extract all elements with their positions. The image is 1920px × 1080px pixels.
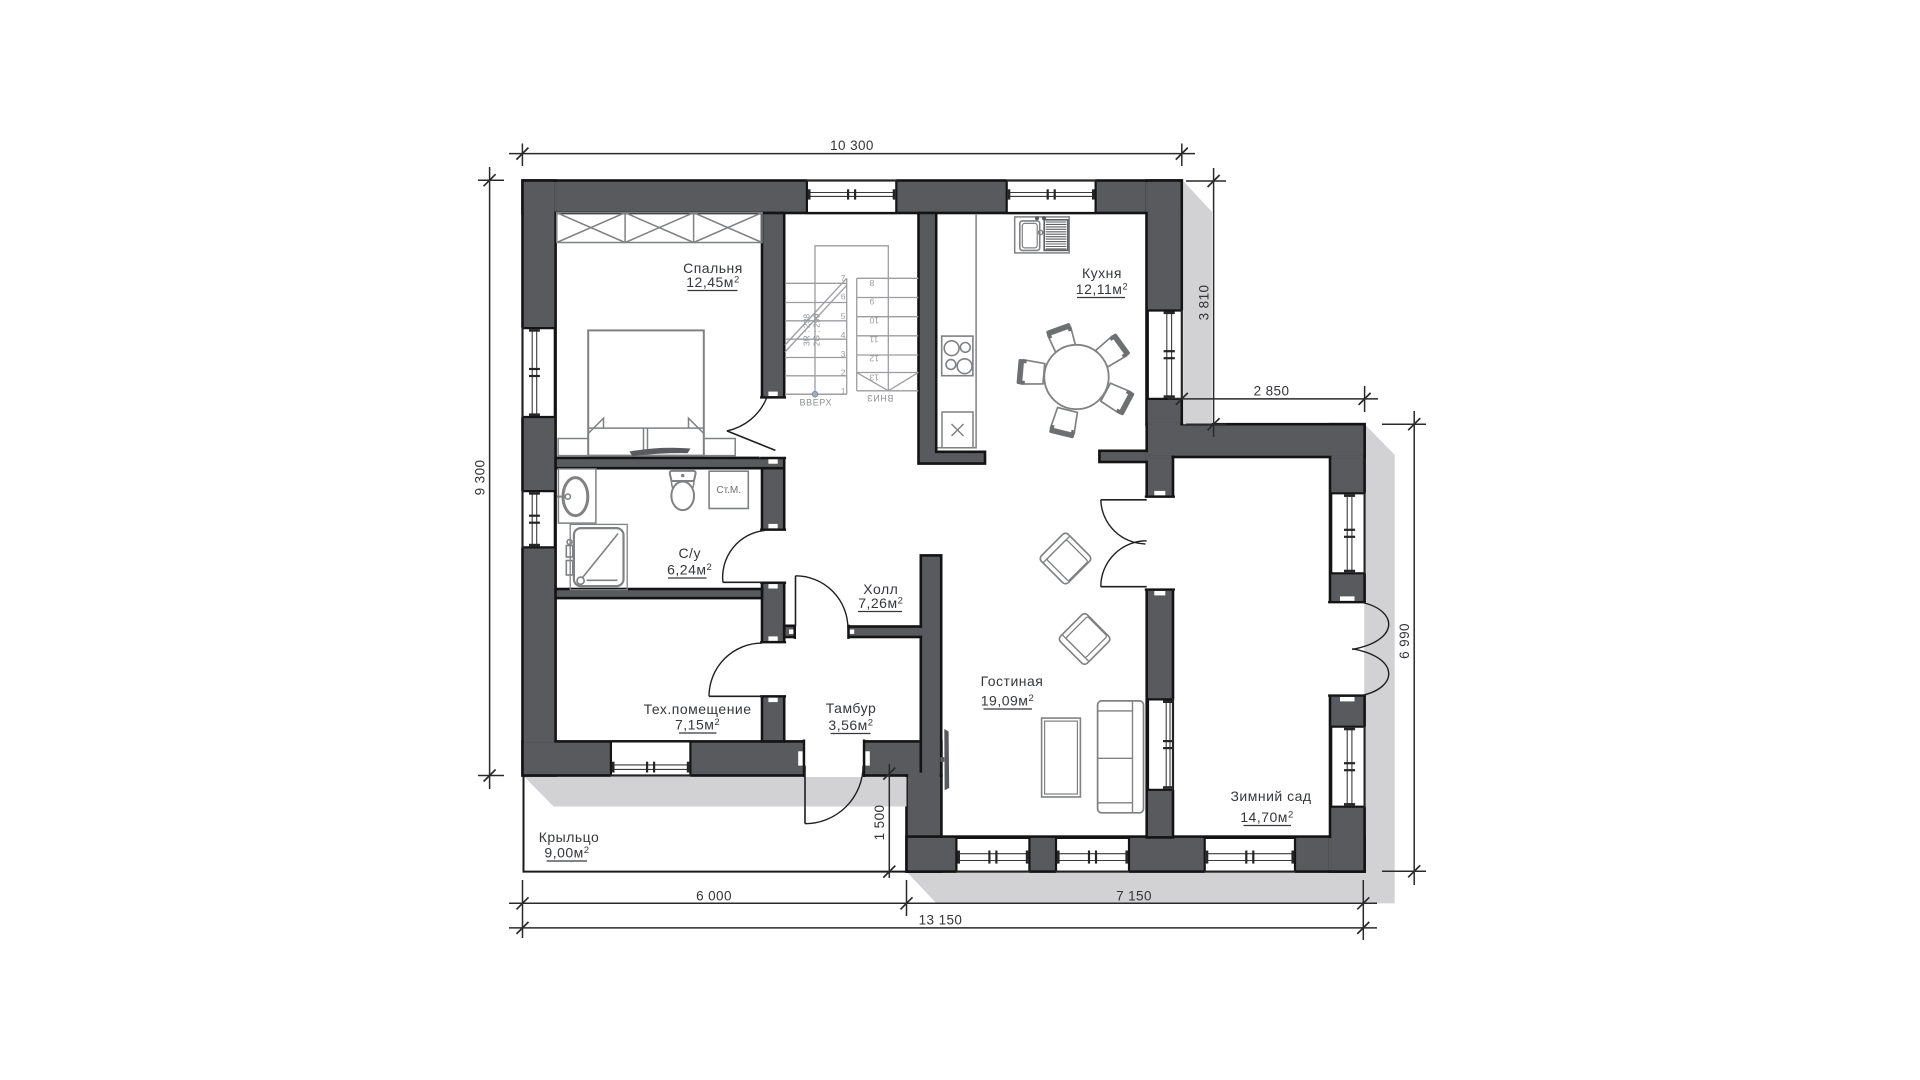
svg-text:Кухня: Кухня xyxy=(1082,265,1122,281)
svg-text:7 150: 7 150 xyxy=(1116,889,1152,904)
svg-text:2 850: 2 850 xyxy=(1254,384,1290,399)
svg-text:14,70м2: 14,70м2 xyxy=(1240,809,1293,825)
svg-text:2: 2 xyxy=(841,368,846,378)
svg-text:11: 11 xyxy=(869,335,878,345)
svg-text:4: 4 xyxy=(841,330,846,340)
svg-text:6,24м2: 6,24м2 xyxy=(667,562,712,578)
svg-text:3,56м2: 3,56м2 xyxy=(828,717,873,733)
svg-text:6 000: 6 000 xyxy=(696,889,732,904)
svg-text:5: 5 xyxy=(841,311,846,321)
svg-text:8: 8 xyxy=(869,278,874,288)
svg-text:ВВЕРХ: ВВЕРХ xyxy=(799,398,832,408)
svg-text:12,11м2: 12,11м2 xyxy=(1076,281,1128,297)
svg-text:9,00м2: 9,00м2 xyxy=(544,845,589,861)
svg-text:ВНИЗ: ВНИЗ xyxy=(867,393,894,403)
svg-text:6 990: 6 990 xyxy=(1397,623,1412,659)
svg-text:1 500: 1 500 xyxy=(872,805,887,841)
svg-text:10: 10 xyxy=(869,316,879,326)
svg-text:3: 3 xyxy=(841,349,846,359)
svg-text:1: 1 xyxy=(841,386,846,396)
svg-text:С/у: С/у xyxy=(678,545,701,561)
svg-text:2G : 299: 2G : 299 xyxy=(812,313,822,346)
svg-text:Тех.помещение: Тех.помещение xyxy=(644,701,752,717)
svg-text:13 150: 13 150 xyxy=(919,913,963,928)
svg-text:3 810: 3 810 xyxy=(1197,285,1212,321)
svg-text:Гостиная: Гостиная xyxy=(981,673,1044,689)
svg-text:13: 13 xyxy=(869,373,879,383)
svg-text:9 300: 9 300 xyxy=(473,460,488,496)
svg-text:7: 7 xyxy=(841,273,846,283)
svg-text:Зимний сад: Зимний сад xyxy=(1230,788,1311,804)
svg-text:6: 6 xyxy=(841,292,846,302)
svg-text:10 300: 10 300 xyxy=(830,138,874,153)
svg-text:Крыльцо: Крыльцо xyxy=(539,829,600,845)
svg-text:9: 9 xyxy=(869,297,874,307)
svg-text:19,09м2: 19,09м2 xyxy=(981,693,1034,709)
svg-text:Ст.М.: Ст.М. xyxy=(716,485,741,496)
svg-text:7,15м2: 7,15м2 xyxy=(675,717,720,733)
svg-text:12: 12 xyxy=(869,354,879,364)
svg-text:12,45м2: 12,45м2 xyxy=(686,274,739,290)
svg-text:3R : 238: 3R : 238 xyxy=(802,314,812,346)
svg-text:7,26м2: 7,26м2 xyxy=(858,595,903,611)
svg-text:Тамбур: Тамбур xyxy=(826,700,877,716)
